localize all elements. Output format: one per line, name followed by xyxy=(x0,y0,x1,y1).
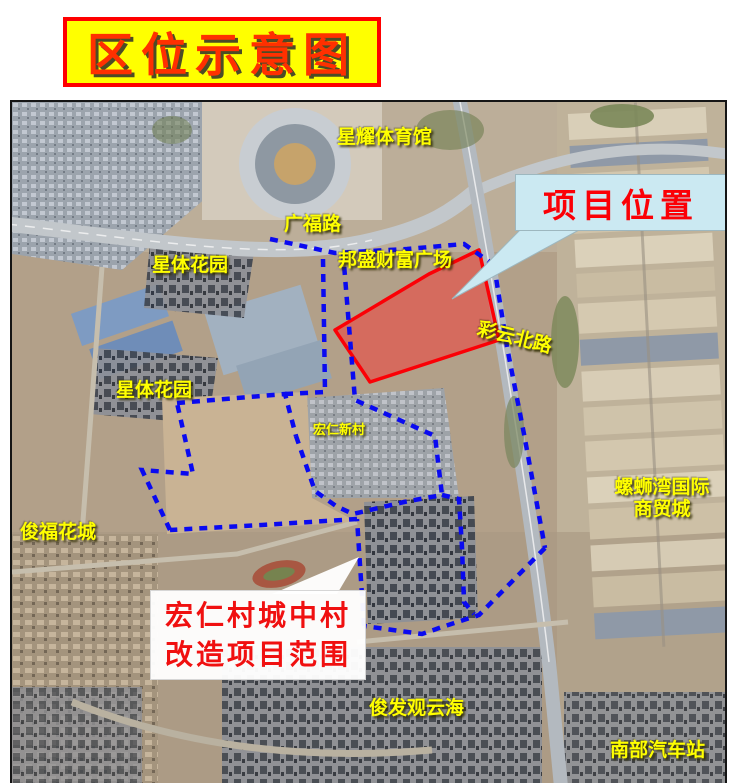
map-label-luosiwan: 螺蛳湾国际 商贸城 xyxy=(592,477,727,521)
map-label-guangfu-road: 广福路 xyxy=(284,214,341,236)
project-location-callout-text: 项目位置 xyxy=(543,179,699,227)
location-map: 星耀体育馆 广福路 星体花园 星体花园 邦盛财富广场 彩云北路 螺蛳湾国际 商贸… xyxy=(10,100,727,783)
map-label-xingti-garden-upper: 星体花园 xyxy=(152,255,228,277)
map-label-junfa-guanyunhai: 俊发观云海 xyxy=(369,698,464,720)
project-scope-callout-line1: 宏仁村城中村 xyxy=(165,596,351,635)
map-label-stadium: 星耀体育馆 xyxy=(337,127,432,149)
map-label-luosiwan-line1: 螺蛳湾国际 xyxy=(592,477,727,499)
page-title: 区位示意图 xyxy=(63,17,381,87)
map-label-hongren-village: 宏仁新村 xyxy=(313,423,365,438)
map-label-junfu-huacheng: 俊福花城 xyxy=(20,522,96,544)
map-label-luosiwan-line2: 商贸城 xyxy=(592,499,727,521)
project-location-callout: 项目位置 xyxy=(515,174,727,231)
project-scope-callout-line2: 改造项目范围 xyxy=(165,635,351,674)
map-label-xingti-garden-lower: 星体花园 xyxy=(116,380,192,402)
location-diagram-page: 区位示意图 xyxy=(0,0,735,783)
map-label-south-bus-station: 南部汽车站 xyxy=(610,740,705,762)
map-label-bangsheng-plaza: 邦盛财富广场 xyxy=(338,250,452,272)
project-scope-callout: 宏仁村城中村 改造项目范围 xyxy=(150,590,366,680)
